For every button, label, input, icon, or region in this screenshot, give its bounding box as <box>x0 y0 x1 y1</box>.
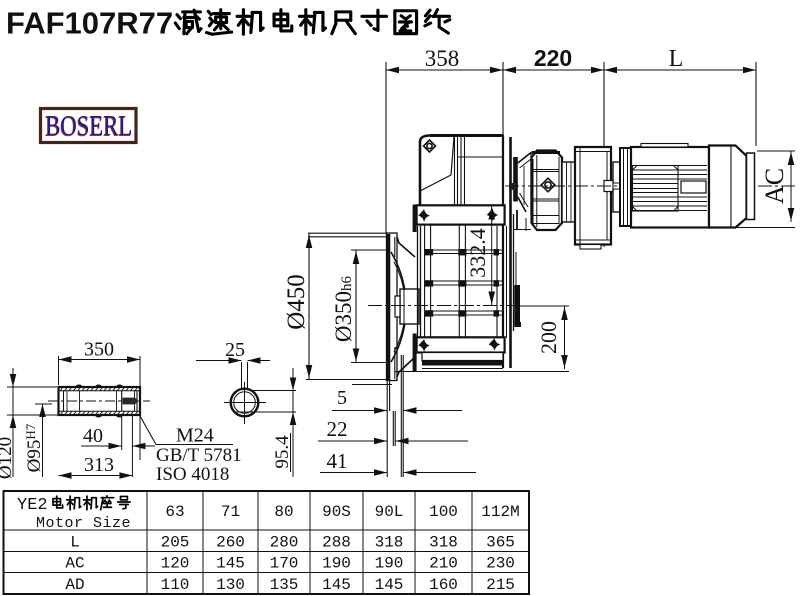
svg-text:318: 318 <box>375 534 404 552</box>
svg-text:190: 190 <box>322 555 351 573</box>
svg-text:22: 22 <box>327 417 348 441</box>
svg-text:160: 160 <box>429 576 458 594</box>
svg-text:112M: 112M <box>481 503 519 521</box>
svg-text:318: 318 <box>429 534 458 552</box>
svg-text:210: 210 <box>429 555 458 573</box>
svg-text:YE2: YE2 <box>17 496 48 515</box>
svg-text:130: 130 <box>216 576 245 594</box>
svg-text:205: 205 <box>161 534 190 552</box>
svg-text:80: 80 <box>274 503 293 521</box>
svg-text:110: 110 <box>161 576 190 594</box>
svg-text:135: 135 <box>270 576 299 594</box>
svg-text:220: 220 <box>534 45 572 71</box>
svg-text:BOSERL: BOSERL <box>45 111 132 142</box>
svg-text:L: L <box>70 534 80 552</box>
svg-text:190: 190 <box>375 555 404 573</box>
svg-text:230: 230 <box>486 555 515 573</box>
svg-text:ISO 4018: ISO 4018 <box>156 464 229 485</box>
svg-text:280: 280 <box>270 534 299 552</box>
svg-text:313: 313 <box>84 454 114 476</box>
svg-text:40: 40 <box>83 425 103 447</box>
svg-text:145: 145 <box>375 576 404 594</box>
svg-text:25: 25 <box>225 339 245 361</box>
svg-text:M24: M24 <box>176 425 214 447</box>
svg-text:Motor Size: Motor Size <box>36 515 131 532</box>
svg-text:120: 120 <box>161 555 190 573</box>
svg-text:Ø120: Ø120 <box>0 437 16 479</box>
svg-text:95.4: 95.4 <box>272 435 293 469</box>
svg-text:358: 358 <box>425 46 460 71</box>
svg-text:215: 215 <box>486 576 515 594</box>
svg-text:100: 100 <box>429 503 458 521</box>
svg-text:332.4: 332.4 <box>465 228 490 278</box>
svg-text:90L: 90L <box>375 503 404 521</box>
svg-text:GB/T 5781: GB/T 5781 <box>156 445 242 466</box>
svg-text:5: 5 <box>337 387 347 409</box>
svg-text:Ø350h6: Ø350h6 <box>331 275 356 342</box>
svg-text:41: 41 <box>327 449 348 473</box>
svg-text:AC: AC <box>760 168 789 204</box>
svg-text:AC: AC <box>65 555 84 573</box>
svg-text:288: 288 <box>322 534 351 552</box>
svg-text:200: 200 <box>536 321 561 354</box>
svg-text:Ø95H7: Ø95H7 <box>23 423 45 472</box>
svg-text:Ø450: Ø450 <box>283 274 310 330</box>
svg-text:145: 145 <box>322 576 351 594</box>
svg-text:365: 365 <box>486 534 515 552</box>
svg-text:90S: 90S <box>322 503 351 521</box>
svg-text:71: 71 <box>221 503 240 521</box>
svg-text:145: 145 <box>216 555 245 573</box>
svg-text:170: 170 <box>270 555 299 573</box>
svg-text:63: 63 <box>165 503 184 521</box>
svg-text:AD: AD <box>65 576 84 594</box>
svg-text:350: 350 <box>84 339 114 361</box>
svg-text:260: 260 <box>216 534 245 552</box>
svg-text:L: L <box>669 46 684 72</box>
svg-text:FAF107R77: FAF107R77 <box>6 6 173 41</box>
